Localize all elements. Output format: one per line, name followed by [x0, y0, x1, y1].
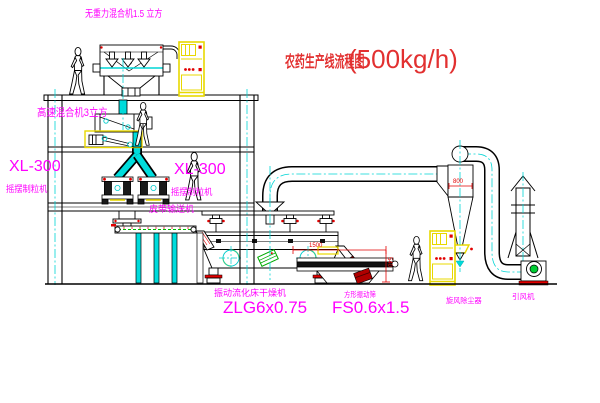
gravity-free-mixer-drawing	[93, 45, 180, 96]
fan-motor	[530, 265, 538, 273]
granulator-middle-name-label: 摇摆制粒机	[171, 188, 212, 197]
gravity-free-mixer-label: 无重力混合机1.5 立方	[85, 10, 162, 20]
fluid-bed-dryer-name-label: 振动流化床干燥机	[214, 289, 286, 298]
granulator-discharge-pipe	[113, 211, 141, 227]
vibrating-screen-model-label: FS0.6x1.5	[332, 299, 410, 316]
cyclone-width-dimension: 800	[453, 179, 463, 185]
person-figure-icon	[70, 47, 85, 94]
granulator-left-name-label: 摇摆制粒机	[6, 185, 47, 194]
granulator-right-drawing	[138, 177, 169, 204]
second-floor-slab	[48, 147, 254, 152]
belt-conveyor-drawing	[111, 224, 203, 283]
screen-length-dimension: 1500	[309, 243, 322, 249]
person-figure-icon	[409, 236, 423, 280]
induced-fan-drawing	[519, 261, 548, 285]
cyclone-dust-collector-label: 旋风除尘器	[446, 297, 482, 305]
diagram-title-capacity: (500kg/h)	[348, 46, 458, 72]
cad-flow-diagram-canvas: 无重力混合机1.5 立方 农药生产线流程图 (500kg/h) 高速混合机3立方…	[0, 0, 600, 403]
cyclone-inlet-reducer	[437, 166, 448, 196]
control-cabinet-top	[179, 42, 204, 96]
induced-draft-fan-label: 引风机	[512, 293, 535, 301]
granulator-left-drawing	[102, 177, 133, 204]
granulator-left-model-label: XL-300	[9, 159, 61, 175]
fluid-bed-dryer-model-label: ZLG6x0.75	[223, 299, 307, 316]
roof-slab	[44, 95, 258, 101]
belt-conveyor-label: 皮带输送机	[149, 205, 194, 214]
vibrating-screen-drawing	[297, 258, 398, 284]
screen-height-dimension: 540	[386, 257, 392, 267]
control-cabinet-right	[430, 231, 455, 285]
high-speed-mixer-label: 高速混合机3立方	[37, 108, 108, 119]
granulator-middle-model-label: XL-300	[174, 162, 226, 178]
